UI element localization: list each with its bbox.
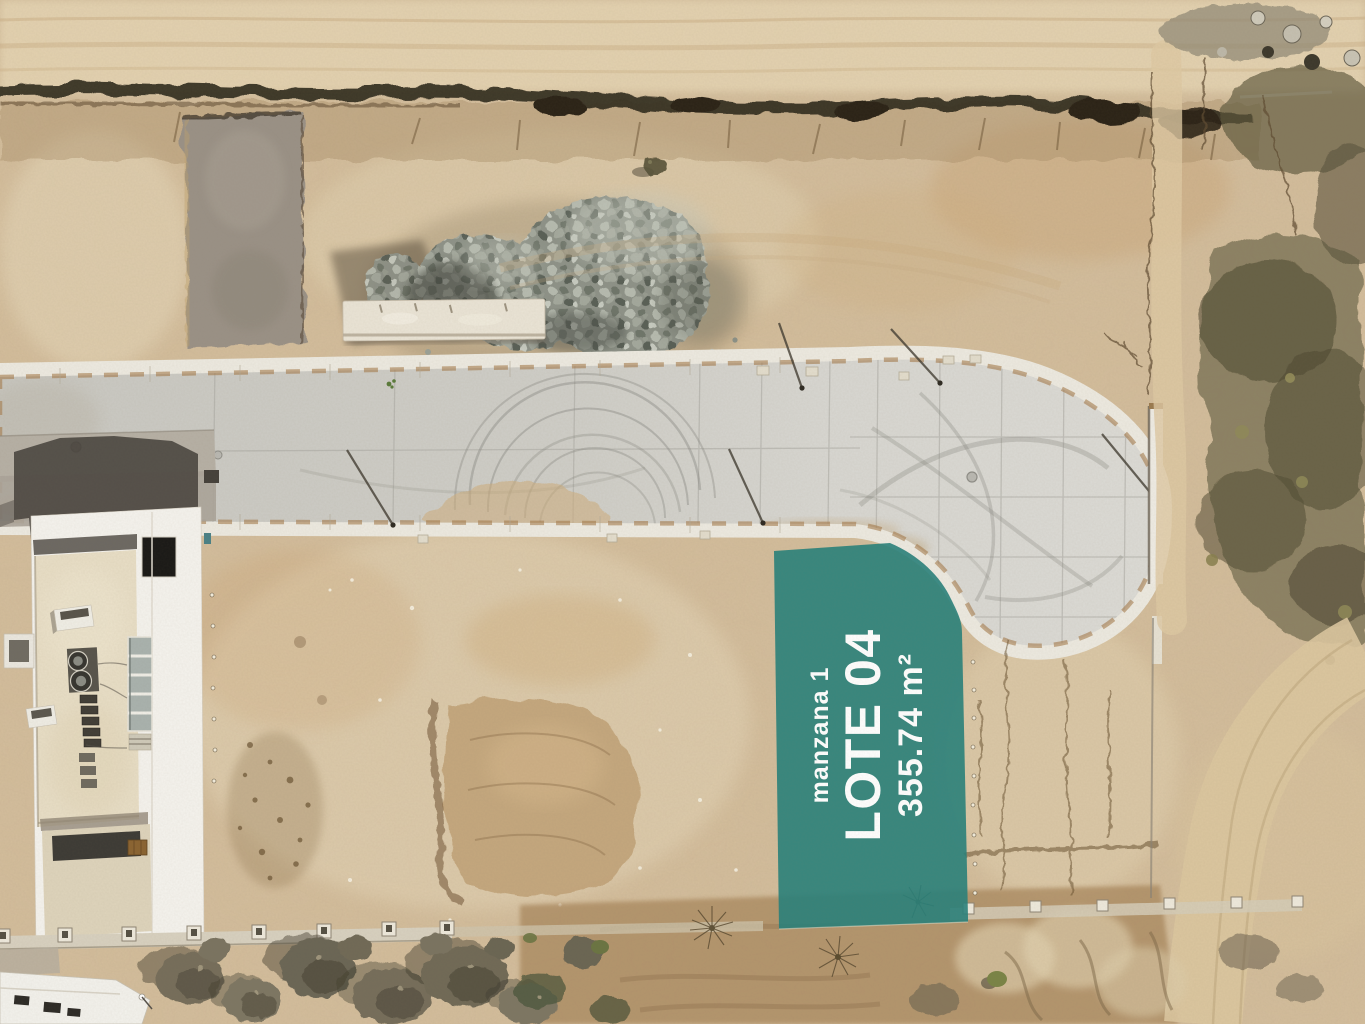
aerial-photo-canvas: manzana 1 LOTE 04 355.74 m² <box>0 0 1365 1024</box>
aerial-lot-photo: manzana 1 LOTE 04 355.74 m² <box>0 0 1365 1024</box>
photo-grain <box>0 0 1365 1024</box>
